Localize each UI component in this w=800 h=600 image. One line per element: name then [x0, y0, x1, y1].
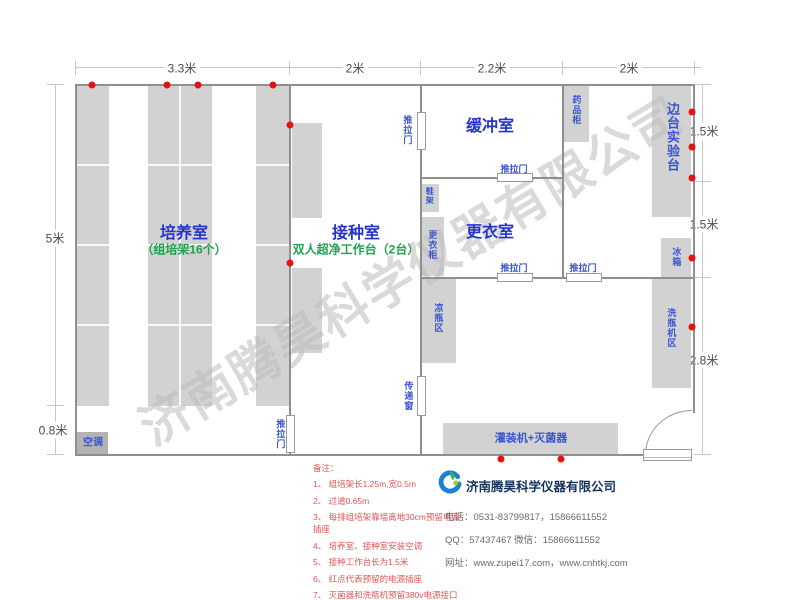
room-title-inoculation: 接种室 [332, 219, 380, 243]
power-outlet-dot [689, 255, 696, 262]
company-name: 济南腾昊科学仪器有限公司 [466, 476, 616, 495]
sliding-door [566, 273, 602, 282]
wall-left [75, 84, 77, 456]
room-title-buffer: 缓冲室 [466, 112, 514, 136]
power-outlet-dot [89, 82, 96, 89]
label-air-conditioner: 空调 [83, 437, 103, 449]
rack-divider [76, 324, 109, 326]
dim-tick [47, 454, 64, 455]
room-sub-culture: （组培架16个） [141, 241, 226, 258]
power-outlet-dot [498, 456, 505, 463]
wall-culture-inoculation [289, 84, 291, 456]
dim-tick [420, 61, 421, 75]
clean-bench-1 [292, 123, 322, 218]
power-outlet-dot [689, 175, 696, 182]
sliding-door [497, 273, 533, 282]
label-sliding-door: 推拉门 [500, 164, 527, 174]
power-outlet-dot [689, 109, 696, 116]
sliding-door [497, 173, 533, 182]
dim-tick [75, 61, 76, 75]
dim-tick [694, 61, 695, 75]
dim-tick [289, 61, 290, 75]
label-sliding-door: 推拉门 [569, 263, 596, 273]
power-outlet-dot [164, 82, 171, 89]
rack-divider [256, 164, 289, 166]
entry-door-leaf [643, 449, 692, 461]
power-outlet-dot [689, 324, 696, 331]
label-sliding-door: 推拉门 [275, 419, 285, 449]
dim-label-top-2: 2米 [343, 60, 368, 77]
room-title-culture: 培养室 [160, 219, 208, 243]
power-outlet-dot [287, 260, 294, 267]
dim-tick [694, 454, 711, 455]
rack-divider [256, 244, 289, 246]
dim-label-right-3: 2.8米 [687, 352, 722, 369]
power-outlet-dot [270, 82, 277, 89]
room-sub-inoculation: 双人超净工作台（2台） [293, 241, 420, 258]
power-outlet-dot [689, 144, 696, 151]
dim-tick [694, 84, 711, 85]
company-website: 网址：www.zupei17.com，www.cnhtkj.com [445, 555, 628, 569]
company-qq-wechat: QQ：57437467 微信：15866611552 [445, 532, 628, 546]
wall-changing-south [420, 277, 695, 279]
company-phone: 电话：0531-83799817，15866611552 [445, 509, 628, 523]
sliding-door [417, 112, 426, 150]
dim-tick [694, 181, 711, 182]
room-title-side-bench: 边台实验台 [664, 102, 679, 172]
label-sliding-door: 推拉门 [500, 263, 527, 273]
label-medicine-cabinet: 药品柜 [571, 95, 581, 125]
note-item: 6、 红点代表预留的电源插座 [313, 573, 463, 585]
dim-tick [47, 84, 64, 85]
floor-plan: 济南腾昊科学仪器有限公司 3.3米 2米 2.2米 2米 5米 0.8米 1.5… [0, 0, 800, 600]
dim-line-right [702, 84, 703, 455]
dim-label-left-2: 0.8米 [36, 422, 71, 439]
label-filler-sterilizer: 灌装机+灭菌器 [495, 433, 567, 446]
power-outlet-dot [558, 456, 565, 463]
label-washer-area: 洗瓶机区 [666, 308, 676, 348]
rack-divider [148, 164, 212, 166]
rack-divider [76, 164, 109, 166]
sliding-door [286, 415, 295, 453]
label-locker: 更衣柜 [427, 230, 437, 260]
dim-label-left-1: 5米 [43, 230, 68, 247]
label-sliding-door: 推拉门 [402, 115, 412, 145]
dim-label-top-4: 2米 [617, 60, 642, 77]
power-outlet-dot [195, 82, 202, 89]
wall-buffer-changing [420, 177, 564, 179]
company-block: 济南腾昊科学仪器有限公司 电话：0531-83799817，1586661155… [437, 470, 628, 569]
pass-window [417, 376, 426, 416]
label-fridge: 冰箱 [671, 247, 681, 267]
room-title-changing: 更衣室 [466, 218, 514, 242]
dim-label-top-3: 2.2米 [475, 60, 510, 77]
note-item: 7、 灭菌器和洗瓶机预留380v电源接口 [313, 589, 463, 600]
power-outlet-dot [287, 122, 294, 129]
dim-label-right-2: 1.5米 [687, 216, 722, 233]
label-shoe-rack: 鞋架 [425, 187, 434, 205]
dim-tick [47, 405, 64, 406]
dim-tick [562, 61, 563, 75]
wall-right [693, 84, 695, 413]
label-pass-window: 传递窗 [403, 381, 413, 411]
dim-tick [694, 277, 711, 278]
wall-buffer-corridor [562, 84, 564, 278]
label-cool-bottle: 凉瓶区 [433, 303, 443, 333]
company-logo [437, 470, 462, 500]
dim-label-top-1: 3.3米 [165, 60, 200, 77]
dim-line-left [55, 84, 56, 455]
rack-divider [76, 244, 109, 246]
rack-divider [148, 324, 212, 326]
